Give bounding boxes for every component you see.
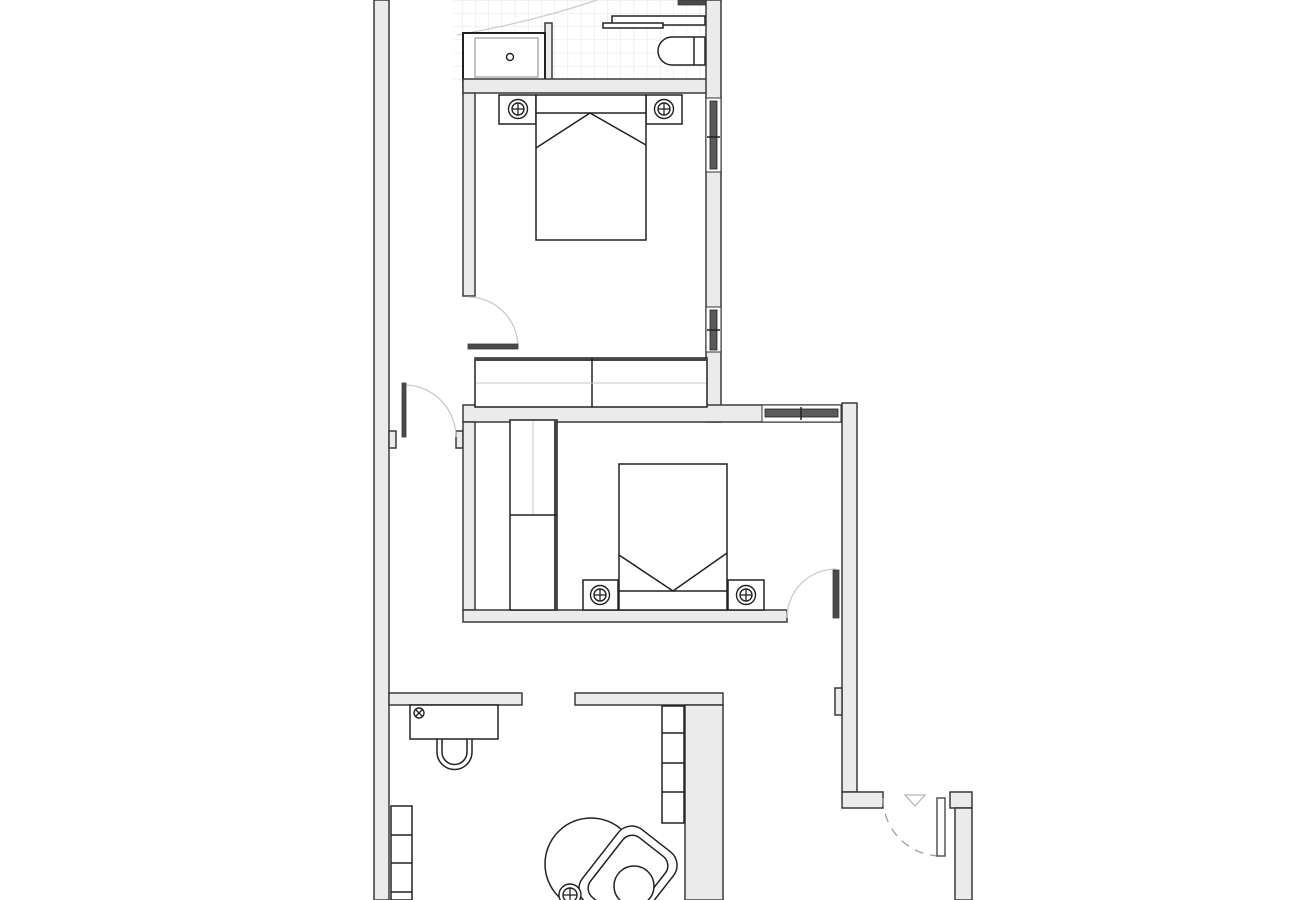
- wall-right-lower: [842, 403, 857, 792]
- wall-jamb-right: [456, 431, 463, 448]
- wall-left-outer: [374, 0, 389, 900]
- floor-lamp-icon: [559, 884, 581, 900]
- wall-right-upper: [706, 0, 721, 422]
- desk-screw-icon: [414, 708, 424, 718]
- wall-entry-right: [955, 808, 972, 900]
- wall-jamb-left: [389, 431, 396, 448]
- corridor-door-arc: [404, 385, 456, 437]
- window-bedroom1-upper: [706, 98, 721, 172]
- corridor-door-leaf: [402, 383, 406, 437]
- entrance-door-leaf: [937, 798, 945, 856]
- wall-living-top-right: [575, 693, 723, 705]
- bedroom2-door-leaf: [833, 570, 839, 618]
- wall-living-top-left: [389, 693, 522, 705]
- table-lamp-icon: [509, 100, 528, 119]
- entrance-triangle-marker: [905, 795, 925, 806]
- double-bed: [536, 95, 646, 240]
- wall-niche: [835, 688, 842, 715]
- sink-drain-icon: [507, 54, 514, 61]
- wall-hall-bottom: [842, 792, 883, 808]
- wall-bathroom-bottom: [463, 79, 720, 93]
- wall-bedroom2-bottom: [463, 610, 787, 622]
- table-lamp-icon: [737, 586, 756, 605]
- bedroom1-door-leaf: [468, 344, 518, 349]
- table-lamp-icon: [591, 586, 610, 605]
- entrance-swing-arc: [883, 798, 941, 856]
- shelving-left-wall: [391, 806, 412, 900]
- window-bedroom1-lower: [706, 307, 721, 352]
- bathroom-top-dark-bar: [678, 0, 710, 5]
- floor-plan: Apartment floor plan — top view architec…: [0, 0, 1300, 900]
- armchair: [545, 818, 684, 900]
- shelf-unit: [662, 706, 684, 823]
- bedroom2-door-arc: [787, 569, 836, 618]
- living-area: [391, 705, 684, 900]
- bedroom1-door-arc: [468, 297, 518, 347]
- wall-service-column: [685, 705, 723, 900]
- desk-chair-inner: [442, 739, 467, 765]
- wall-entry-right-top: [950, 792, 972, 808]
- armchair-cushion: [614, 866, 654, 900]
- windows: [706, 98, 841, 422]
- shelf-unit: [391, 806, 412, 900]
- table-lamp-icon: [655, 100, 674, 119]
- double-bed: [619, 464, 727, 610]
- toilet-icon: [658, 37, 705, 65]
- bathroom-shelf-lower: [603, 23, 663, 28]
- wall-bedroom2-left: [463, 422, 475, 610]
- bedroom-2: [510, 420, 839, 618]
- shelving-column: [662, 706, 684, 823]
- wall-bathroom-stub: [545, 23, 552, 81]
- window-sash: [710, 101, 717, 169]
- bedroom-1: [468, 95, 707, 407]
- window-bedroom2-top: [762, 405, 841, 422]
